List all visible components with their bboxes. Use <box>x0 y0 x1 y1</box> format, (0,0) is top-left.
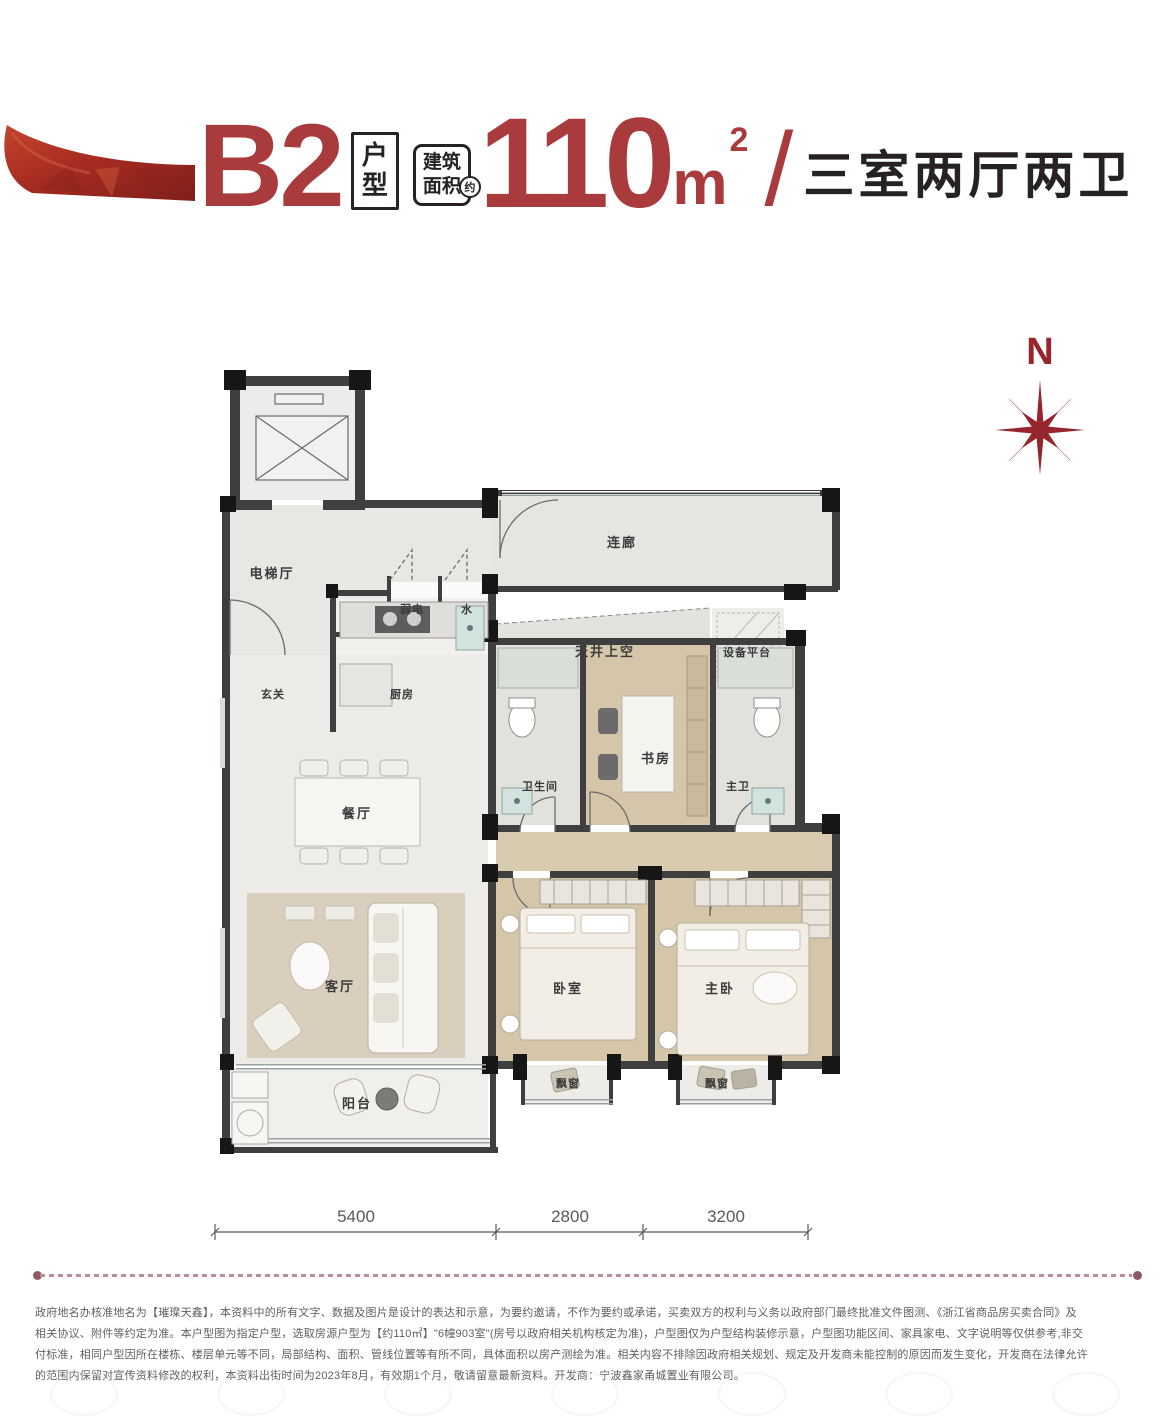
area-exponent: 2 <box>729 121 748 160</box>
unit-type-label-top: 户 <box>362 141 388 171</box>
room-label-bay-window-1: 飘窗 <box>556 1076 580 1090</box>
unit-type-code: B2 <box>198 120 341 212</box>
floor-plan: 电梯厅 连廊 弱电 水 天井上空 设备平台 玄关 厨房 卫生间 书房 主卫 餐厅… <box>190 368 890 1168</box>
room-label-dining-room: 餐厅 <box>341 806 372 821</box>
room-label-master-bedroom: 主卧 <box>705 981 735 996</box>
room-label-master-bath: 主卫 <box>726 779 750 793</box>
dimension-3200: 3200 <box>707 1207 745 1226</box>
area-unit: m <box>672 156 727 212</box>
disclaimer-line-1: 政府地名办核准地名为【璀璨天鑫】，本资料中的所有文字、数据及图片是设计的表达和示… <box>35 1303 1145 1324</box>
area-value: 110 <box>479 115 671 212</box>
room-label-study: 书房 <box>641 751 671 766</box>
header-slash: / <box>764 129 793 212</box>
room-label-weak-electric: 弱电 <box>400 602 424 616</box>
disclaimer-line-3: 付标准，相同户型因所在楼栋、楼层单元等不同，局部结构、面积、管线位置等有所不同，… <box>35 1345 1145 1366</box>
dimension-2800: 2800 <box>551 1207 589 1226</box>
room-label-bedroom: 卧室 <box>553 981 583 996</box>
separator-cap-right <box>1133 1271 1142 1280</box>
room-label-elevator-hall: 电梯厅 <box>249 566 294 581</box>
room-label-bathroom: 卫生间 <box>522 779 558 793</box>
dashed-separator <box>40 1274 1132 1277</box>
area-badge: 建筑 面积 约 <box>413 144 471 206</box>
room-label-bay-window-2: 飘窗 <box>705 1076 729 1090</box>
unit-type-label-box: 户 型 <box>351 132 399 210</box>
layout-description: 三室两厅两卫 <box>803 134 1133 208</box>
watermark-row <box>0 1372 1170 1400</box>
compass-north-label: N <box>1026 332 1053 373</box>
area-approx-mark: 约 <box>459 176 481 198</box>
area-badge-line2: 面积 <box>423 175 461 199</box>
disclaimer-line-2: 相关协议、附件等约定为准。本户型图为指定户型，选取房源户型为【约110㎡】"6幢… <box>35 1324 1145 1345</box>
compass-star <box>995 380 1085 475</box>
room-label-link-corridor: 连廊 <box>607 535 637 550</box>
compass-rose: N <box>993 332 1088 487</box>
room-label-lightwell: 天井上空 <box>575 644 635 659</box>
room-label-foyer: 玄关 <box>261 687 285 701</box>
dimension-line: 5400 2800 3200 <box>200 1196 840 1246</box>
dimension-5400: 5400 <box>337 1207 375 1226</box>
unit-type-label-bottom: 型 <box>362 171 388 201</box>
brand-swoosh <box>0 123 195 205</box>
area-badge-line1: 建筑 <box>423 151 461 175</box>
room-label-kitchen: 厨房 <box>390 687 414 701</box>
page-header: B2 户 型 建筑 面积 约 110 m 2 / 三室两厅两卫 <box>198 102 1133 212</box>
room-label-water: 水 <box>461 602 473 616</box>
room-label-living-room: 客厅 <box>325 979 355 994</box>
room-label-equipment-platform: 设备平台 <box>723 645 771 659</box>
room-label-balcony: 阳台 <box>342 1096 372 1111</box>
